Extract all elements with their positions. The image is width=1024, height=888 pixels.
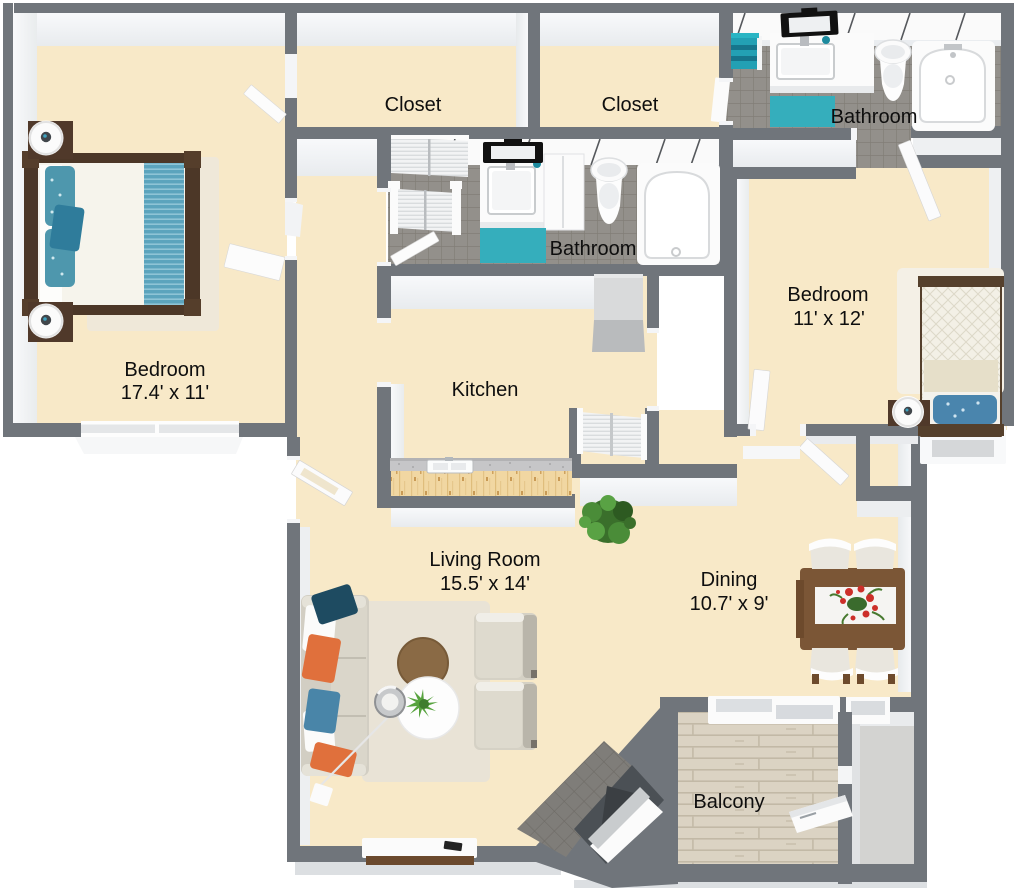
svg-text:17.4' x 11': 17.4' x 11' — [121, 382, 209, 404]
svg-text:Living Room: Living Room — [429, 549, 540, 571]
svg-text:Closet: Closet — [602, 94, 659, 116]
svg-text:Bathroom: Bathroom — [831, 106, 918, 128]
svg-text:Balcony: Balcony — [693, 791, 764, 813]
svg-text:Bedroom: Bedroom — [124, 359, 205, 381]
svg-text:Kitchen: Kitchen — [452, 379, 519, 401]
svg-text:Bathroom: Bathroom — [550, 238, 637, 260]
svg-text:Bedroom: Bedroom — [787, 284, 868, 306]
svg-text:Closet: Closet — [385, 94, 442, 116]
svg-text:10.7' x 9': 10.7' x 9' — [690, 593, 769, 615]
svg-text:Dining: Dining — [701, 569, 758, 591]
svg-text:11' x 12': 11' x 12' — [793, 308, 865, 330]
svg-text:15.5' x 14': 15.5' x 14' — [440, 573, 530, 595]
